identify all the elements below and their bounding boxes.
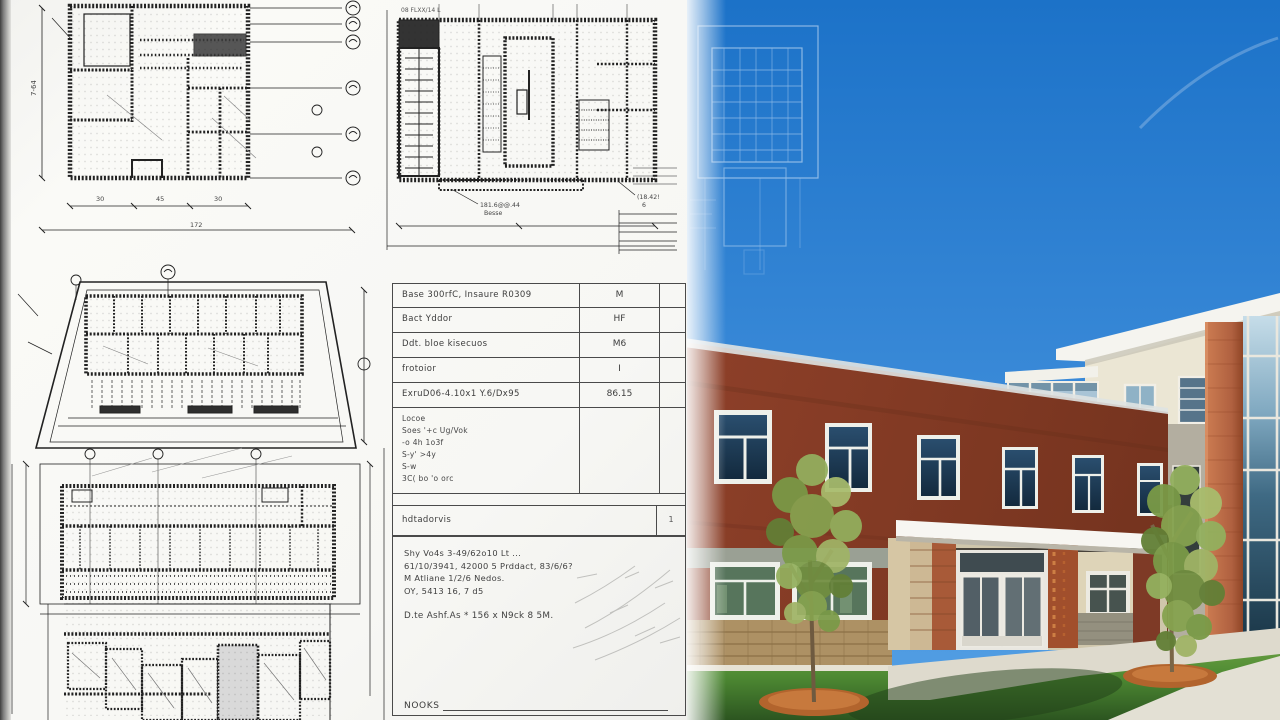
plan-caption: (18.42! [637, 194, 660, 201]
edge-fade [684, 0, 726, 720]
window [917, 435, 960, 500]
curtain-wall [1243, 316, 1280, 642]
row-label: Base 300rfC, Insaure R0309 [393, 284, 579, 307]
notes-line: S-y' >4y [402, 449, 579, 461]
separator-band [392, 494, 686, 505]
floor-plan-bottom-left [2, 428, 390, 720]
floor-plan-top-middle: 08 FLXX/14 L 181.6@@.44 Besse (18.42! 6 [383, 0, 685, 260]
pencil-sketch-marks [565, 548, 687, 673]
dim-label: 7-64 [30, 80, 38, 96]
window [1002, 447, 1038, 509]
footer-rule [443, 710, 668, 711]
plan-caption: Besse [484, 210, 502, 217]
row-stub [659, 308, 685, 332]
row-value: HF [579, 308, 659, 332]
row-label: frotoior [393, 358, 579, 382]
row-value: M [579, 284, 659, 307]
footer-label: NOOKS [404, 701, 440, 711]
dim-label: 30 [96, 195, 104, 203]
entrance-doors [956, 550, 1048, 650]
table-row: frotoior I [392, 358, 686, 383]
row-label: Ddt. bloe kisecuos [393, 333, 579, 357]
row-stub [659, 408, 685, 493]
dim-label: 172 [190, 221, 202, 229]
table-row: Ddt. bloe kisecuos M6 [392, 333, 686, 358]
row-value: 86.15 [579, 383, 659, 407]
row-label: ExruD06-4.10x1 Y.6/Dx95 [393, 383, 579, 407]
row-value: M6 [579, 333, 659, 357]
floor-plan-top-left: 7-64 30 45 30 172 [12, 0, 372, 252]
table-row: ExruD06-4.10x1 Y.6/Dx95 86.15 [392, 383, 686, 408]
notes-line: -o 4h 1o3f [402, 437, 579, 449]
notes-footer: NOOKS [404, 701, 668, 711]
window [1072, 455, 1104, 513]
dim-label: 45 [156, 195, 164, 203]
table-row: Base 300rfC, Insaure R0309 M [392, 283, 686, 308]
plan-caption: 181.6@@.44 [480, 201, 520, 209]
row-label: hdtadorvis [393, 506, 656, 535]
notes-lines: Locoe Soes '+c Ug/Vok -o 4h 1o3f S-y' >4… [393, 408, 579, 493]
row-value: I [579, 358, 659, 382]
entrance-pillar-left [910, 537, 956, 650]
building-photo [640, 0, 1280, 720]
table-row: hdtadorvis 1 [392, 505, 686, 536]
row-label: Bact Yddor [393, 308, 579, 332]
notes-line: Locoe [402, 413, 579, 425]
entrance-pillar-right [1048, 543, 1078, 648]
row-stub [659, 383, 685, 407]
row-stub [659, 358, 685, 382]
entrance [888, 520, 1167, 650]
plan-caption: 6 [642, 202, 646, 209]
notes-value-cell [579, 408, 659, 493]
plan-title: 08 FLXX/14 L [401, 7, 441, 14]
blueprint-sheet: 7-64 30 45 30 172 [0, 0, 687, 720]
architectural-composite: 7-64 30 45 30 172 [0, 0, 1280, 720]
notes-line: Soes '+c Ug/Vok [402, 425, 579, 437]
stone-corner [888, 538, 912, 650]
notes-line: S-w [402, 461, 579, 473]
table-row: Bact Yddor HF [392, 308, 686, 333]
row-value: 1 [656, 506, 685, 535]
notes-cell: Locoe Soes '+c Ug/Vok -o 4h 1o3f S-y' >4… [392, 408, 686, 494]
dim-label: 30 [214, 195, 222, 203]
row-stub [659, 333, 685, 357]
notes-line: 3C( bo 'o orc [402, 473, 579, 485]
row-stub [659, 284, 685, 307]
louver-window [1179, 377, 1208, 423]
